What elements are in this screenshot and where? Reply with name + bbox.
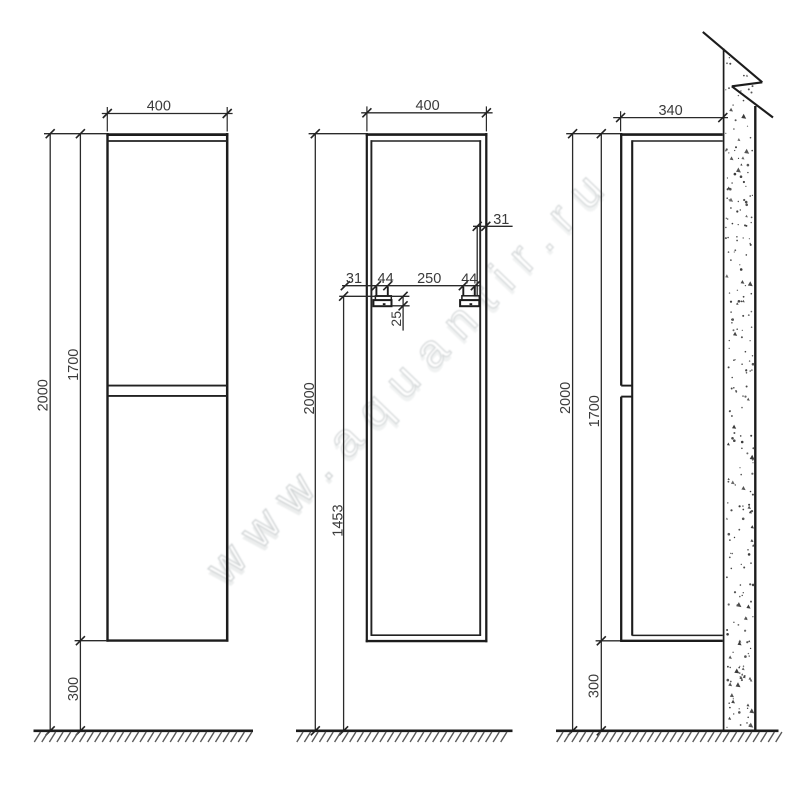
svg-text:2000: 2000 [558,382,574,414]
svg-text:31: 31 [493,212,509,228]
svg-text:400: 400 [415,98,439,114]
svg-text:44: 44 [378,271,394,287]
svg-text:1453: 1453 [331,504,347,536]
svg-text:340: 340 [658,103,682,119]
svg-text:2000: 2000 [36,379,52,411]
svg-text:1700: 1700 [587,395,603,427]
svg-text:1700: 1700 [66,349,82,381]
svg-text:400: 400 [147,99,171,115]
svg-text:300: 300 [587,674,603,698]
svg-text:31: 31 [346,271,362,287]
svg-text:44: 44 [461,272,477,288]
svg-text:2000: 2000 [302,382,318,414]
svg-text:300: 300 [66,677,82,701]
svg-text:25: 25 [388,311,404,327]
svg-text:250: 250 [417,271,441,287]
